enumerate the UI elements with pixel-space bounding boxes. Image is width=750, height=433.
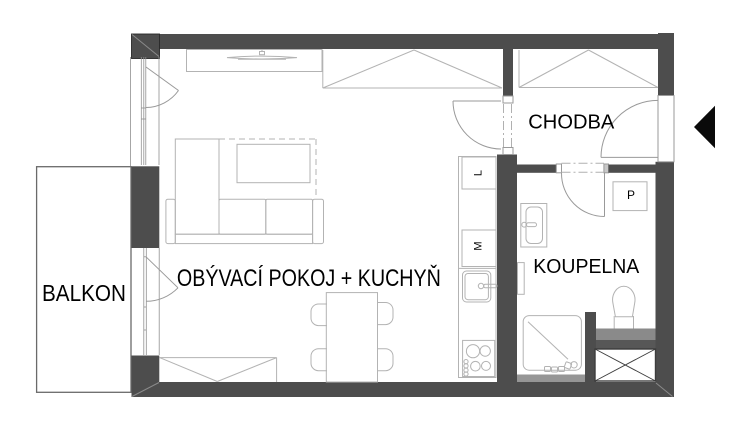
svg-text:BALKON: BALKON	[42, 280, 126, 306]
svg-text:KOUPELNA: KOUPELNA	[533, 255, 639, 278]
svg-text:L: L	[473, 170, 485, 176]
svg-text:CHODBA: CHODBA	[528, 110, 614, 133]
svg-text:OBÝVACÍ POKOJ + KUCHYŇ: OBÝVACÍ POKOJ + KUCHYŇ	[177, 265, 441, 292]
svg-text:M: M	[473, 241, 485, 250]
svg-text:P: P	[627, 188, 635, 202]
